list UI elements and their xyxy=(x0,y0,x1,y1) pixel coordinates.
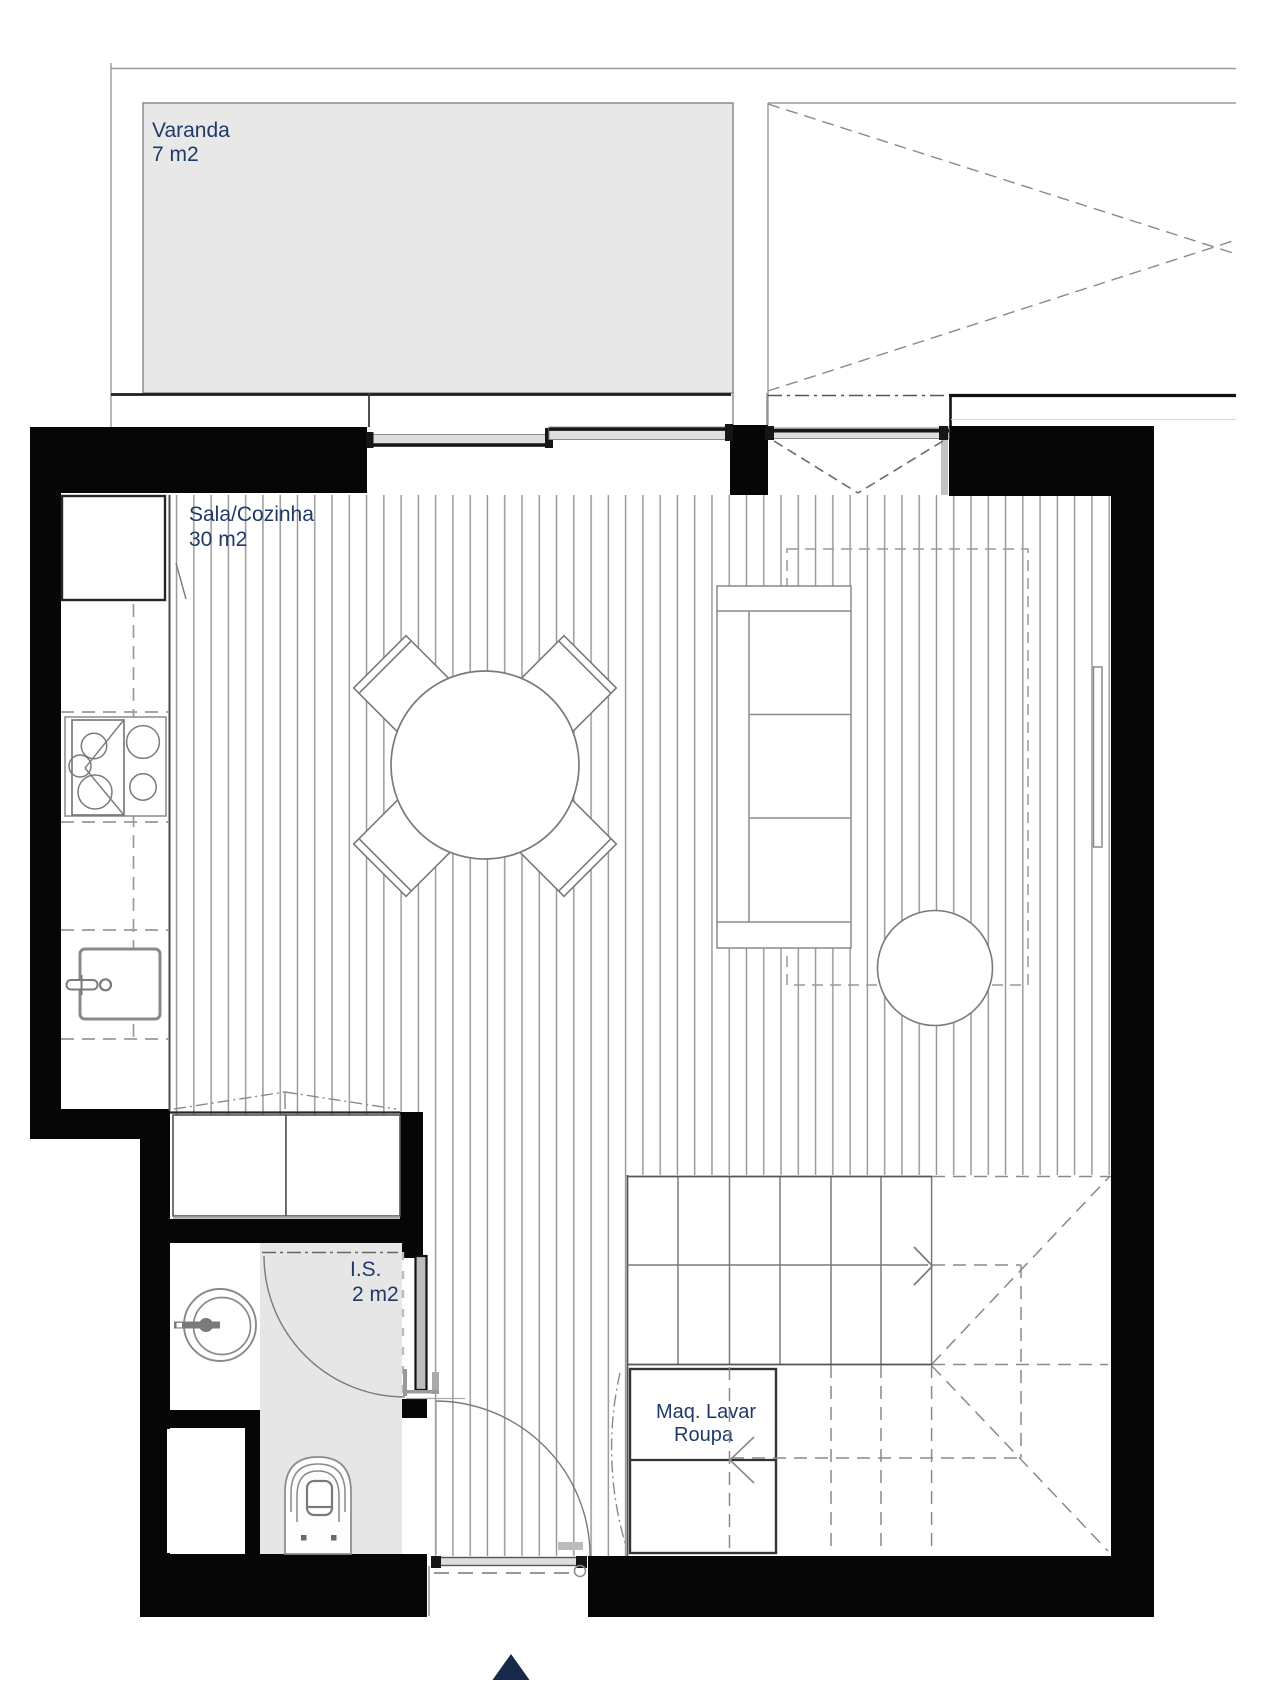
svg-text:30 m2: 30 m2 xyxy=(189,528,247,551)
svg-text:7 m2: 7 m2 xyxy=(152,143,199,166)
svg-text:Maq. Lavar: Maq. Lavar xyxy=(656,1401,756,1423)
svg-text:Sala/Cozinha: Sala/Cozinha xyxy=(189,503,314,526)
svg-text:2 m2: 2 m2 xyxy=(352,1283,399,1306)
svg-text:Roupa: Roupa xyxy=(674,1424,734,1446)
svg-text:I.S.: I.S. xyxy=(350,1258,382,1281)
svg-text:Varanda: Varanda xyxy=(152,119,230,142)
